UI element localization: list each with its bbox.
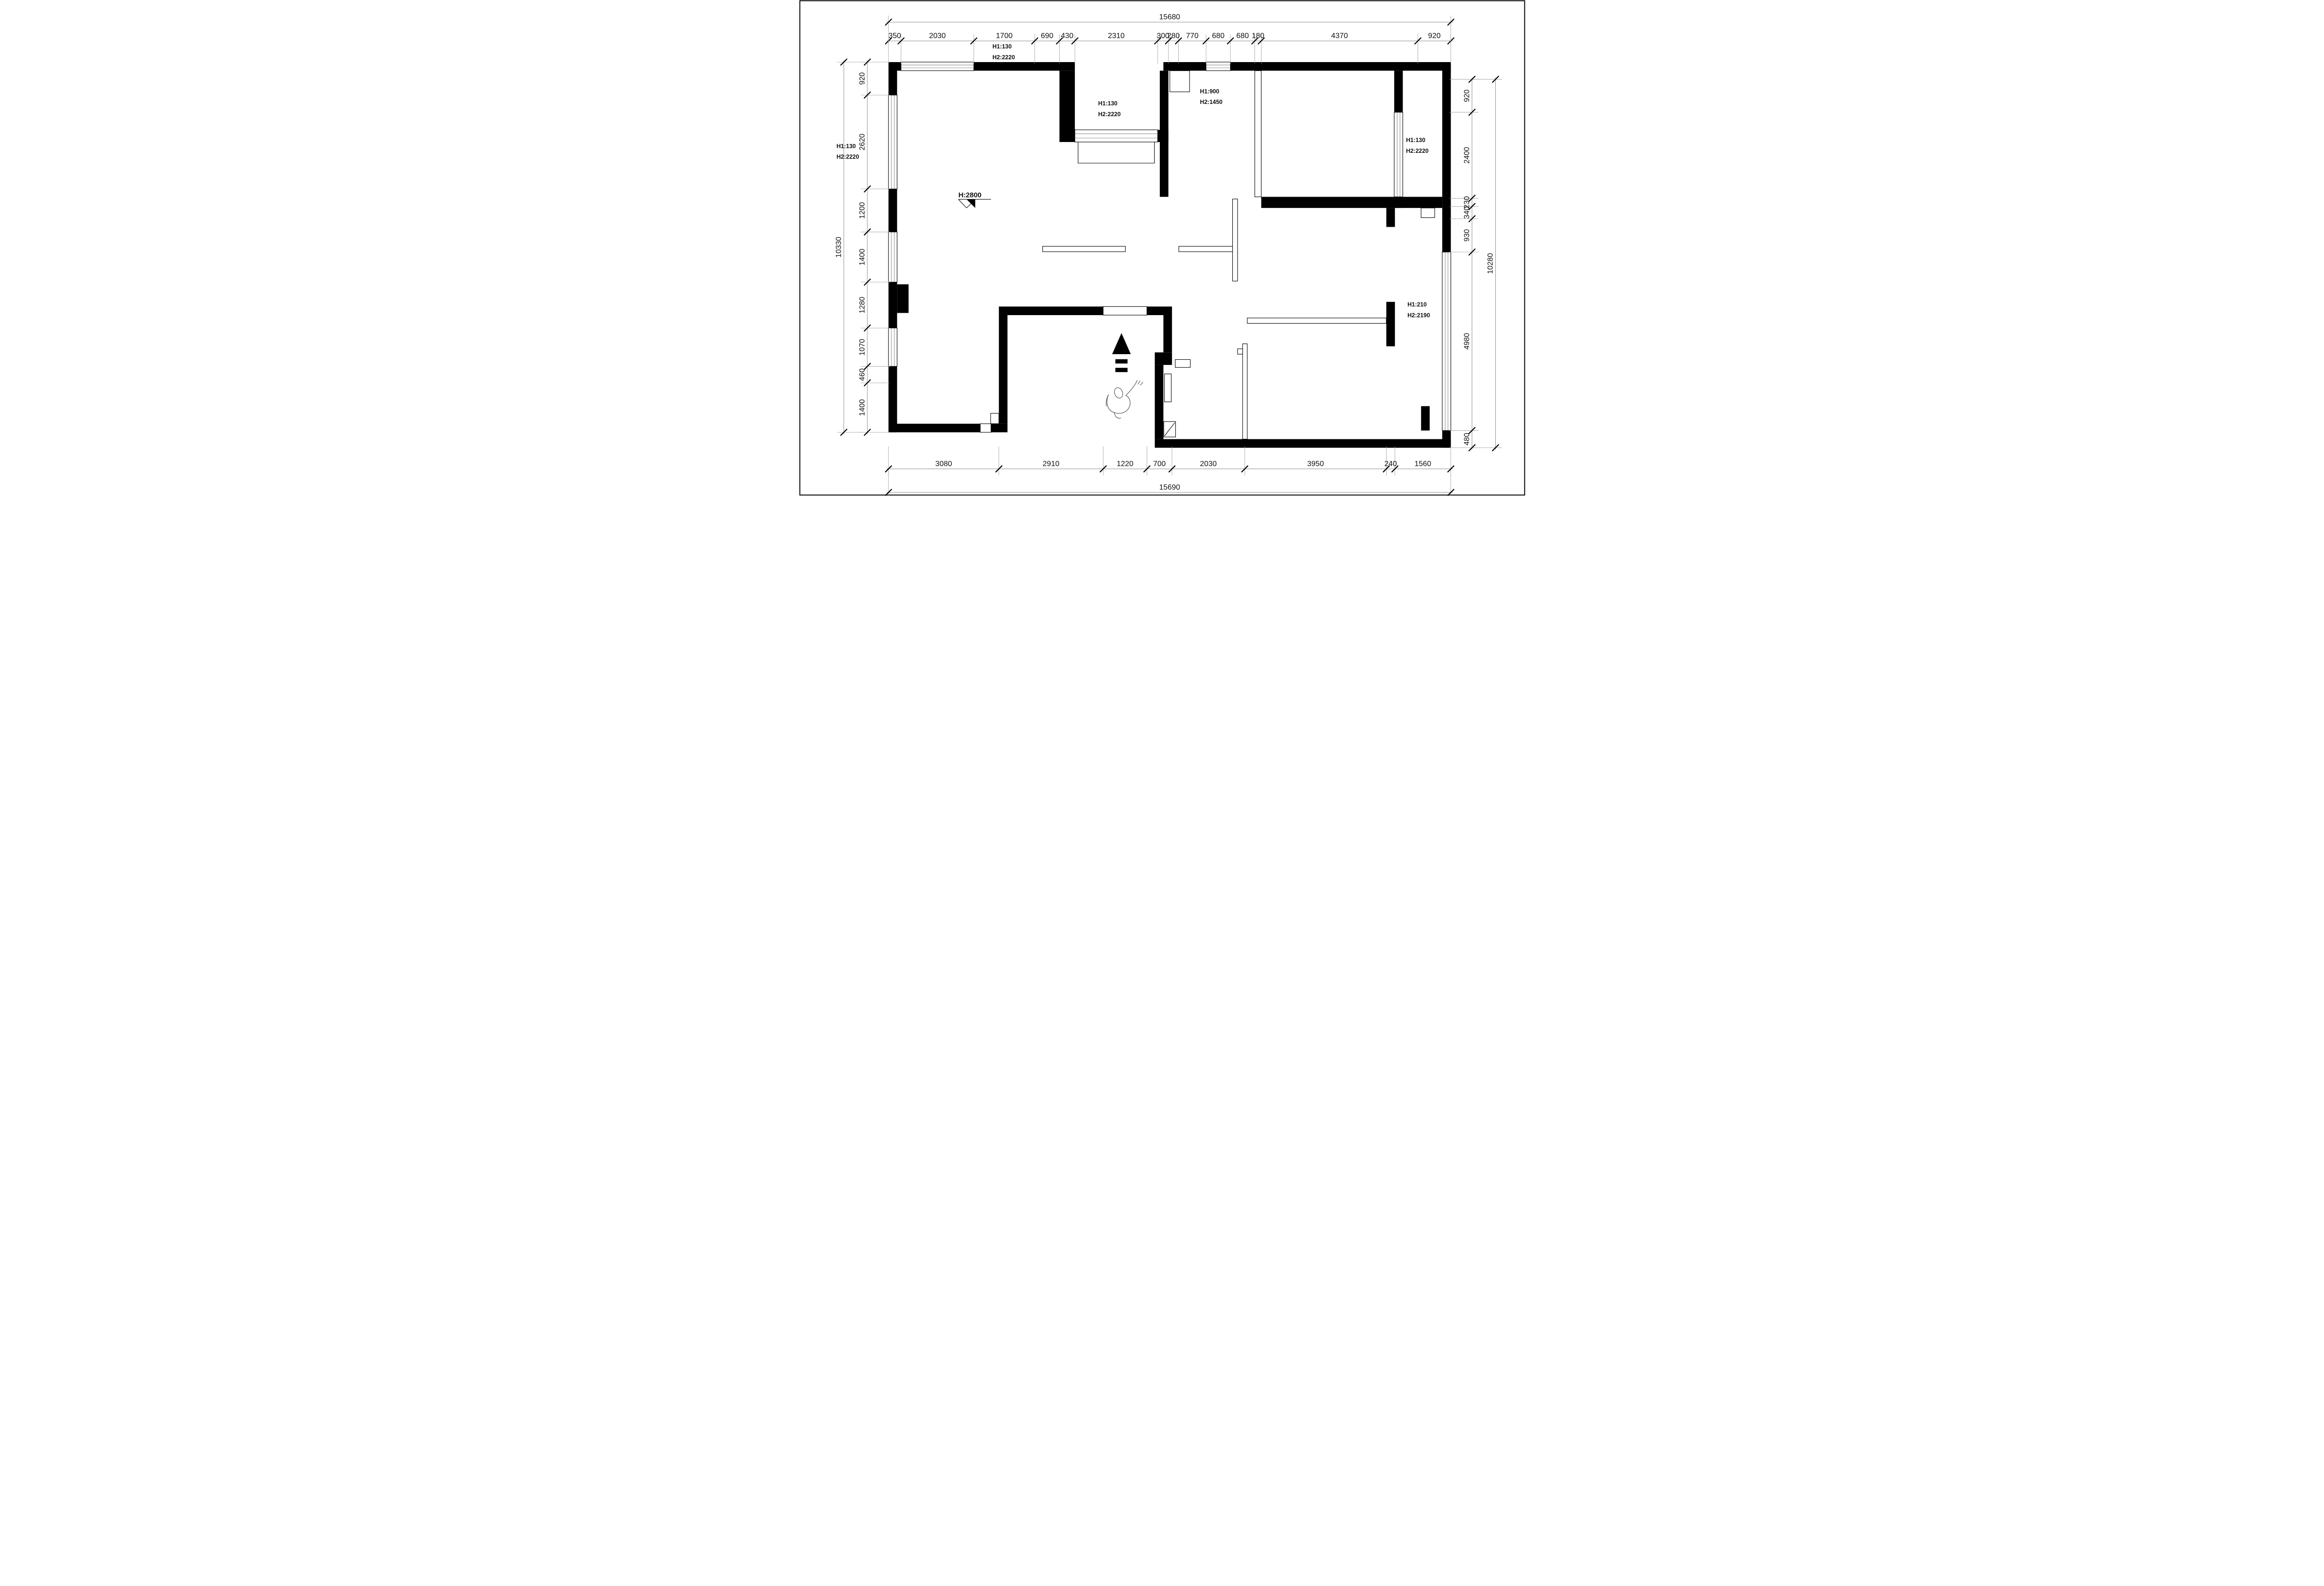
dim-value: 1220: [1117, 460, 1134, 468]
opening-height-label: H1:130H2:2220: [1406, 137, 1428, 154]
floor-plan: 3502030170069043023103002807706806801804…: [799, 0, 1525, 496]
opening-height-label: H1:130H2:2220: [1098, 100, 1120, 118]
ceiling-height-label: H:2800: [958, 191, 981, 199]
thin-partition: [1237, 349, 1243, 354]
dim-value: 1280: [858, 297, 866, 314]
dim-value: 2310: [1108, 32, 1125, 40]
window: [888, 232, 897, 282]
wall: [999, 315, 1007, 424]
dim-value: 700: [1153, 460, 1166, 468]
dim-value: 770: [1186, 32, 1198, 40]
opening-height-label: H1:210H2:2190: [1407, 301, 1430, 319]
wall: [974, 62, 1075, 71]
dim-value: 15680: [1159, 13, 1180, 21]
thin-line: [958, 199, 967, 208]
wall: [1158, 130, 1168, 142]
dim-value: 280: [1167, 32, 1180, 40]
dim-value: 1400: [858, 399, 866, 416]
label-text: H1:130: [1406, 137, 1425, 143]
window: [888, 328, 897, 366]
dim-value: 2620: [858, 134, 866, 151]
wall: [1163, 315, 1172, 352]
wall: [1155, 352, 1172, 365]
wall: [1394, 71, 1403, 112]
dim-value: 340: [1463, 206, 1471, 219]
dim-value: 4370: [1331, 32, 1348, 40]
window: [1075, 130, 1158, 142]
dim-value: 430: [1061, 32, 1073, 40]
thin-partition: [1254, 71, 1261, 197]
window: [1442, 252, 1451, 430]
label-text: H1:210: [1407, 301, 1427, 308]
dim-value: 2400: [1463, 147, 1471, 164]
wall: [1261, 197, 1442, 208]
label-text: H1:130: [992, 43, 1011, 50]
wall: [888, 282, 897, 328]
thin-partition: [1179, 246, 1232, 252]
dim-value: 1560: [1414, 460, 1431, 468]
dim-value: 690: [1040, 32, 1053, 40]
dim-value: 3080: [935, 460, 952, 468]
opening-height-label: H1:130H2:2220: [836, 143, 859, 160]
thin-partition: [1170, 71, 1190, 92]
dim-value: 4980: [1463, 333, 1471, 350]
wall: [1059, 71, 1075, 142]
dim-value: 3950: [1307, 460, 1324, 468]
wall: [1147, 307, 1172, 315]
wall: [888, 62, 897, 95]
dim-value: 930: [1463, 229, 1471, 242]
dim-value: 1200: [858, 202, 866, 219]
wall: [1155, 439, 1451, 448]
dim-chain-right-total: 10280: [1473, 76, 1502, 451]
wall: [888, 189, 897, 232]
dim-value: 2030: [929, 32, 946, 40]
thin-partition: [1175, 359, 1190, 367]
dim-value: 920: [858, 72, 866, 85]
person-figure: [1106, 381, 1142, 418]
partitions-layer: [958, 71, 1435, 439]
dim-value: 1700: [996, 32, 1013, 40]
label-text: H2:1450: [1200, 99, 1222, 105]
dim-value: 1070: [858, 339, 866, 356]
dim-chain-left-chain: 920262012001400128010704601400: [858, 59, 890, 436]
thin-partition: [1242, 344, 1247, 439]
label-text: H2:2220: [992, 54, 1015, 61]
dim-value: 180: [1252, 32, 1264, 40]
dim-value: 10330: [835, 237, 843, 258]
labels-layer: H1:130H2:2220H1:130H2:2220H1:900H2:1450H…: [836, 43, 1430, 319]
dim-value: 480: [1463, 433, 1471, 445]
window: [1206, 62, 1230, 71]
window: [1103, 307, 1147, 315]
label-text: H2:2220: [1098, 111, 1120, 118]
thin-partition: [1247, 318, 1386, 323]
label-text: H2:2190: [1407, 312, 1430, 319]
dim-value: 2030: [1200, 460, 1217, 468]
opening-height-label: H1:130H2:2220: [992, 43, 1015, 61]
label-text: H2:2220: [836, 154, 859, 160]
filled-symbol: [1112, 333, 1131, 354]
dim-value: 2910: [1042, 460, 1059, 468]
wall: [1163, 62, 1206, 71]
floor-plan-canvas: 3502030170069043023103002807706806801804…: [799, 0, 1525, 496]
opening-height-label: H1:900H2:1450: [1200, 88, 1222, 105]
dim-value: 240: [1384, 460, 1397, 468]
thin-partition: [1232, 199, 1237, 281]
wall: [897, 284, 908, 313]
wall: [1386, 208, 1395, 227]
dim-value: 680: [1212, 32, 1224, 40]
window: [888, 95, 897, 189]
dim-chain-bottom-chain: 308029101220700203039502401560: [885, 446, 1454, 476]
dim-value: 680: [1236, 32, 1249, 40]
label-text: H1:130: [1098, 100, 1117, 107]
dim-value: 460: [858, 368, 866, 381]
dim-chain-bottom-total: 15690: [885, 470, 1454, 496]
dim-value: 15690: [1159, 484, 1180, 492]
dim-value: 350: [888, 32, 901, 40]
wall: [999, 307, 1103, 315]
dim-value: 10280: [1486, 253, 1494, 274]
thin-partition: [1164, 374, 1171, 402]
dim-value: 1400: [858, 249, 866, 266]
label-text: H:2800: [958, 191, 981, 199]
wall: [1442, 62, 1451, 252]
label-text: H2:2220: [1406, 148, 1428, 154]
label-text: H1:130: [836, 143, 856, 150]
wall: [1155, 365, 1163, 439]
wall: [888, 366, 897, 432]
entry-arrow-icon: [1115, 368, 1127, 372]
window: [980, 424, 991, 432]
thin-partition: [1421, 208, 1435, 218]
label-text: H1:900: [1200, 88, 1219, 95]
thin-partition: [1042, 246, 1125, 252]
dim-value: 920: [1463, 89, 1471, 102]
wall: [1386, 302, 1395, 346]
thin-line: [1078, 142, 1154, 163]
window: [1394, 112, 1403, 197]
window: [901, 62, 974, 71]
thin-partition: [991, 413, 999, 424]
dim-value: 920: [1428, 32, 1441, 40]
wall: [1442, 430, 1451, 448]
entry-arrow-icon: [1115, 359, 1127, 364]
wall: [1421, 406, 1429, 431]
dim-chain-top-chain: 3502030170069043023103002807706806801804…: [885, 32, 1454, 63]
dim-chain-right-chain: 92024002303409304980480: [1449, 76, 1478, 451]
